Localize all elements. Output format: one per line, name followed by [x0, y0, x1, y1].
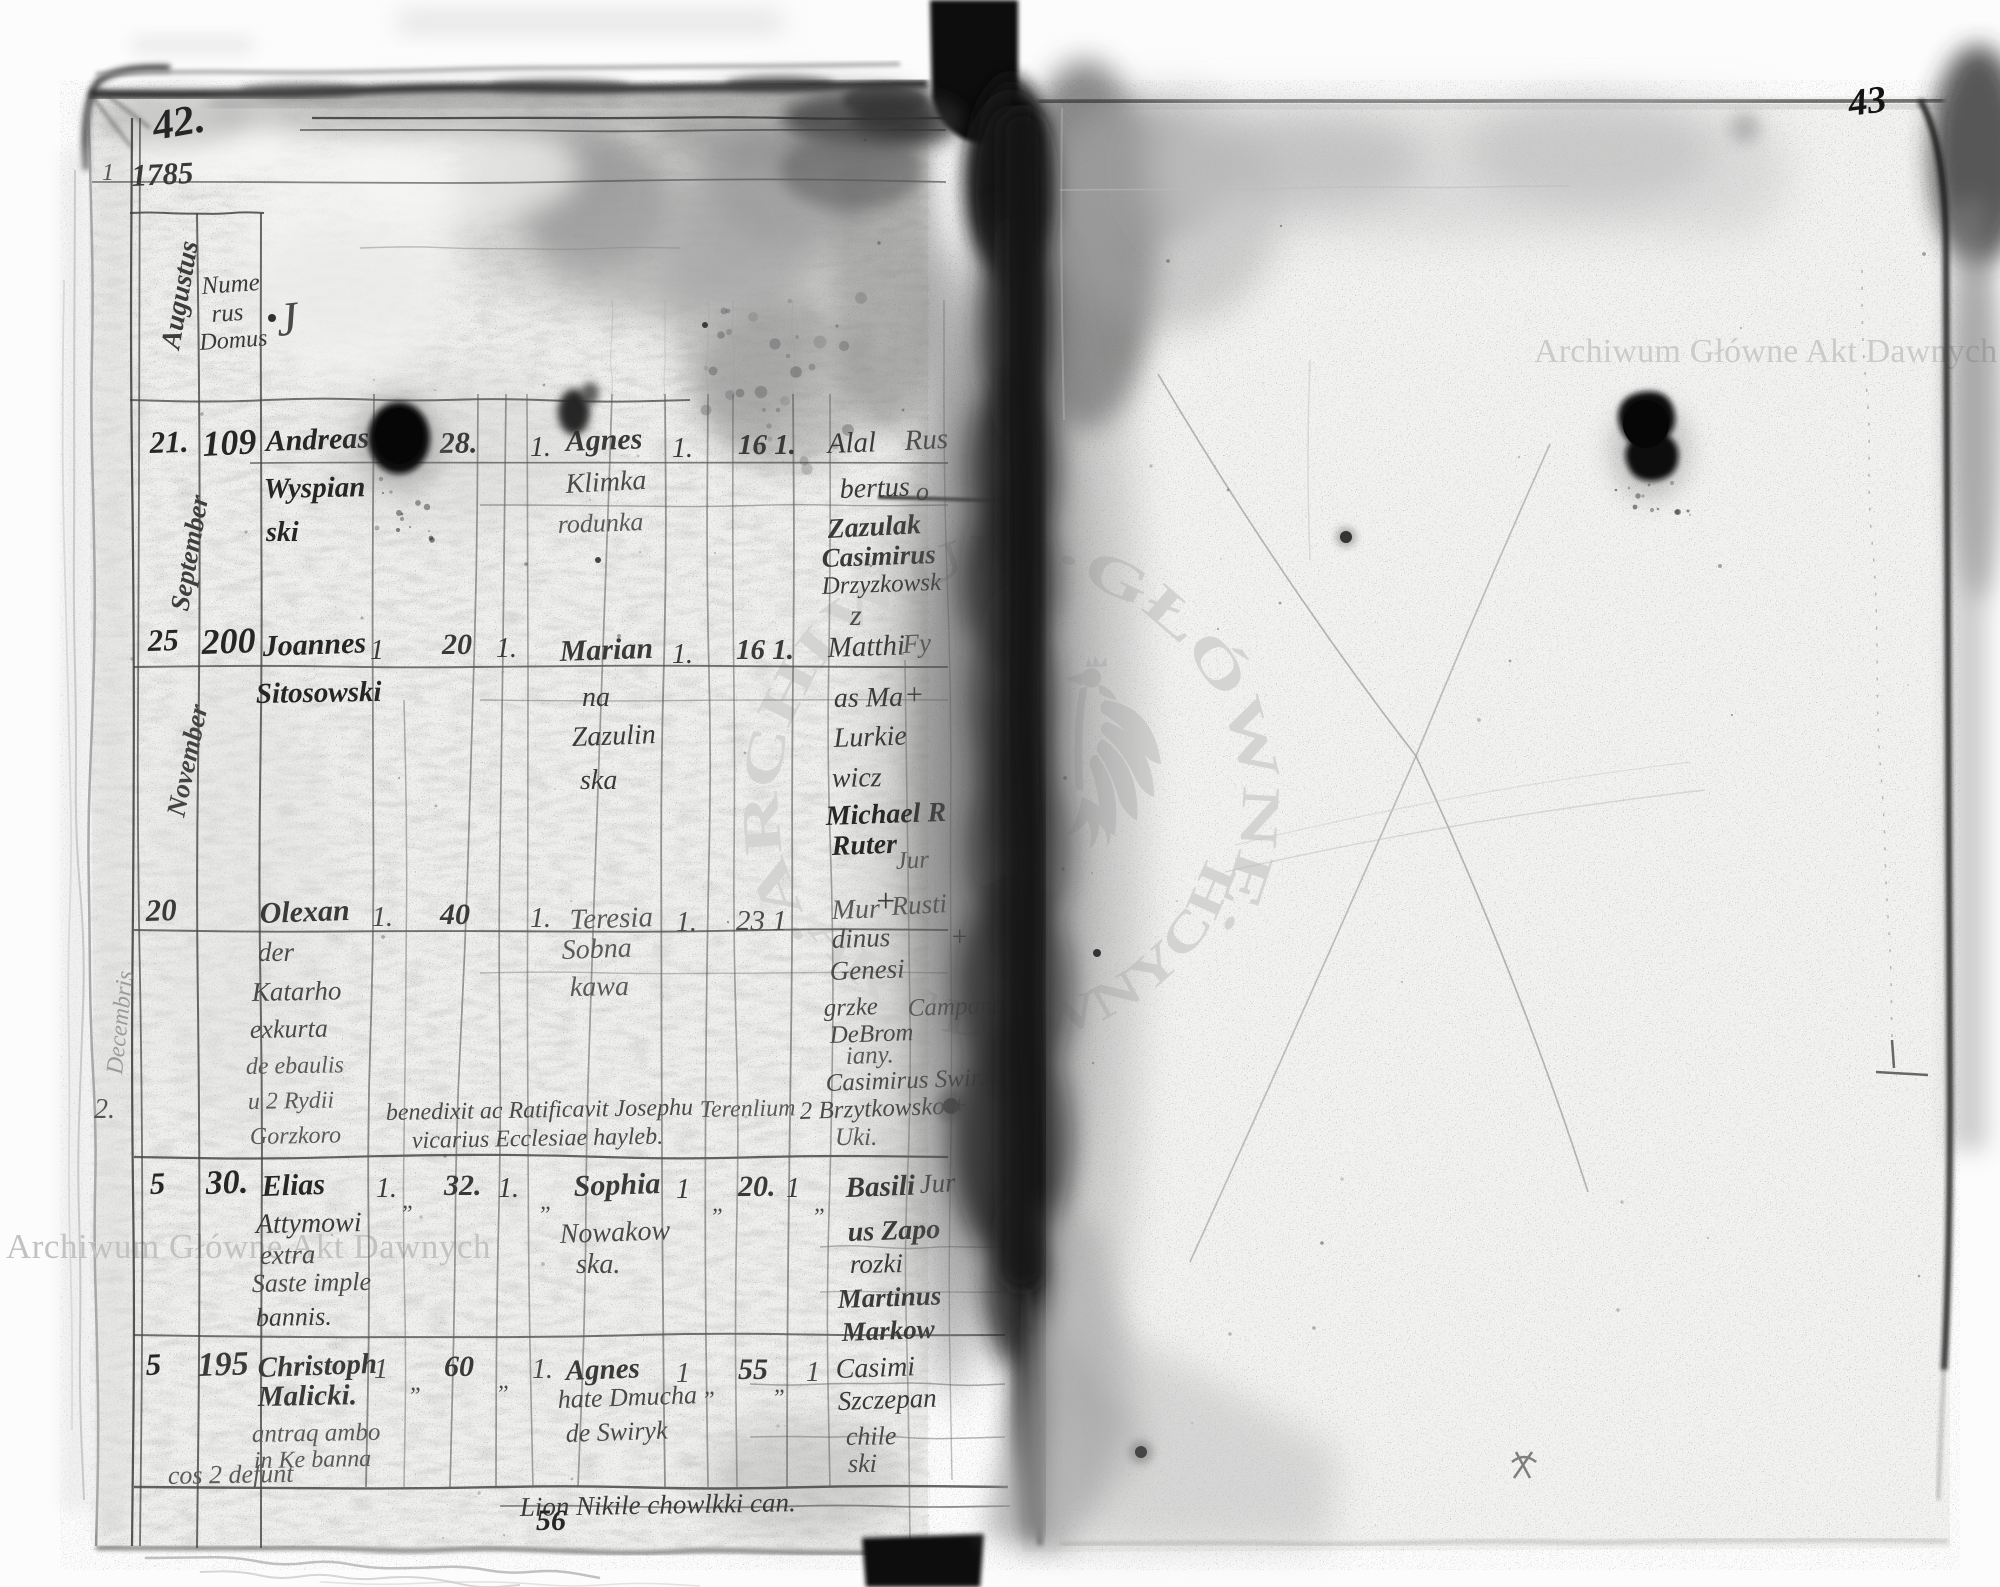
- svg-text:60: 60: [444, 1350, 474, 1383]
- svg-text:rodunka: rodunka: [557, 507, 644, 539]
- svg-text:42.: 42.: [148, 95, 209, 150]
- svg-text:Lurkie: Lurkie: [832, 720, 907, 754]
- svg-text:16 1.: 16 1.: [736, 634, 794, 666]
- svg-text:30.: 30.: [204, 1164, 249, 1202]
- svg-text:Szczepan: Szczepan: [837, 1383, 937, 1416]
- svg-text:de Swiryk: de Swiryk: [565, 1415, 668, 1448]
- svg-text:1: 1: [370, 635, 384, 666]
- svg-text:antraq ambo: antraq ambo: [252, 1419, 381, 1448]
- svg-text:1.: 1.: [496, 633, 517, 664]
- svg-text:benedixit ac Ratificavit Josep: benedixit ac Ratificavit Josephu: [386, 1095, 694, 1126]
- svg-text:195: 195: [197, 1345, 249, 1384]
- svg-text:1785: 1785: [131, 155, 195, 193]
- svg-text:21.: 21.: [148, 424, 189, 460]
- svg-text:Sophia: Sophia: [573, 1167, 661, 1203]
- svg-text:chile: chile: [846, 1421, 897, 1451]
- svg-text:1.: 1.: [498, 1173, 519, 1204]
- svg-text:kawa: kawa: [570, 971, 630, 1003]
- svg-text:as Ma: as Ma: [834, 682, 904, 714]
- svg-text:Malicki.: Malicki.: [257, 1379, 358, 1413]
- svg-text:16 1.: 16 1.: [738, 429, 796, 461]
- svg-text:1: 1: [374, 1354, 388, 1385]
- svg-text:1.: 1.: [672, 639, 693, 670]
- svg-text:„: „: [540, 1189, 553, 1215]
- svg-text:der: der: [258, 937, 294, 967]
- svg-text:bannis.: bannis.: [256, 1302, 332, 1332]
- svg-text:Genesi: Genesi: [829, 953, 905, 986]
- svg-text:dinus: dinus: [831, 922, 891, 954]
- svg-text:Matthi: Matthi: [826, 629, 905, 664]
- svg-text:25: 25: [146, 622, 179, 658]
- svg-text:Basili: Basili: [844, 1170, 915, 1204]
- svg-text:ska.: ska.: [576, 1249, 620, 1280]
- svg-text:vicarius Ecclesiae hayleb.: vicarius Ecclesiae hayleb.: [412, 1124, 664, 1154]
- svg-text:Andreas: Andreas: [263, 421, 369, 458]
- svg-text:56: 56: [536, 1504, 566, 1537]
- svg-text:Alal: Alal: [825, 426, 876, 460]
- svg-text:Katarho: Katarho: [251, 975, 342, 1007]
- svg-text:43: 43: [1844, 78, 1888, 125]
- svg-text:Markow: Markow: [840, 1314, 936, 1347]
- svg-text:Klimka: Klimka: [564, 465, 647, 500]
- svg-text:„: „: [704, 1374, 717, 1400]
- svg-text:1: 1: [786, 1173, 800, 1204]
- svg-text:Sitosowski: Sitosowski: [256, 676, 382, 710]
- svg-text:z: z: [849, 599, 862, 632]
- svg-text:1.: 1.: [530, 903, 551, 934]
- svg-text:Mur: Mur: [830, 893, 880, 926]
- svg-text:„: „: [498, 1368, 511, 1394]
- svg-text:ska: ska: [580, 765, 617, 796]
- svg-text:Gorzkoro: Gorzkoro: [250, 1122, 342, 1150]
- svg-text:55: 55: [738, 1353, 768, 1386]
- svg-text:rus: rus: [211, 299, 245, 328]
- svg-text:1.: 1.: [672, 433, 693, 464]
- svg-text:Joannes: Joannes: [261, 626, 366, 663]
- svg-text:1.: 1.: [376, 1173, 397, 1204]
- svg-text:na: na: [582, 682, 610, 713]
- svg-text:Archiwum Główne Akt Dawnych: Archiwum Główne Akt Dawnych: [6, 1227, 491, 1266]
- svg-text:Christoph: Christoph: [257, 1348, 377, 1384]
- svg-text:Wyspian: Wyspian: [264, 471, 366, 505]
- svg-text:de ebaulis: de ebaulis: [246, 1052, 344, 1080]
- svg-text:„: „: [814, 1191, 827, 1217]
- svg-text:„: „: [410, 1370, 423, 1396]
- svg-text:2.: 2.: [94, 1094, 115, 1125]
- svg-text:extra: extra: [260, 1239, 316, 1270]
- svg-text:109: 109: [201, 421, 257, 464]
- svg-text:u 2 Rydii: u 2 Rydii: [248, 1087, 335, 1115]
- svg-text:200: 200: [200, 620, 256, 662]
- svg-text:Attymowi: Attymowi: [254, 1207, 362, 1240]
- svg-text:5: 5: [145, 1346, 162, 1382]
- svg-text:1: 1: [676, 1174, 690, 1205]
- svg-text:5: 5: [149, 1165, 166, 1201]
- svg-text:1.: 1.: [676, 907, 697, 938]
- svg-text:„: „: [712, 1191, 725, 1217]
- svg-text:bertus: bertus: [839, 472, 910, 505]
- svg-text:Elias: Elias: [260, 1168, 325, 1203]
- svg-text:exkurta: exkurta: [250, 1014, 328, 1044]
- svg-text:Ruter: Ruter: [830, 829, 898, 862]
- svg-text:Uki.: Uki.: [835, 1124, 877, 1151]
- svg-text:ski: ski: [265, 517, 299, 548]
- svg-text:1: 1: [806, 1357, 820, 1388]
- svg-text:wicz: wicz: [832, 762, 882, 794]
- svg-text:Domus: Domus: [198, 325, 269, 356]
- svg-text:1.: 1.: [530, 432, 551, 463]
- svg-text:Teresia: Teresia: [569, 901, 653, 936]
- svg-text:Saste imple: Saste imple: [252, 1267, 372, 1298]
- svg-text:hate Dmucha: hate Dmucha: [557, 1380, 697, 1414]
- svg-text:Marian: Marian: [558, 632, 653, 668]
- svg-text:20: 20: [144, 892, 177, 928]
- svg-text:Olexan: Olexan: [259, 894, 350, 930]
- svg-text:Zazulin: Zazulin: [571, 719, 656, 753]
- svg-text:20.: 20.: [737, 1170, 776, 1203]
- svg-text:23 1: 23 1: [736, 905, 787, 937]
- svg-text:grzke: grzke: [823, 993, 878, 1022]
- svg-text:32.: 32.: [443, 1169, 482, 1202]
- svg-text:cos 2 defunt: cos 2 defunt: [168, 1459, 295, 1490]
- svg-text:1.: 1.: [372, 902, 393, 933]
- svg-text:Sobna: Sobna: [561, 933, 632, 966]
- svg-text:Nowakow: Nowakow: [558, 1215, 671, 1250]
- svg-text:„: „: [402, 1188, 415, 1214]
- svg-text:rozki: rozki: [850, 1248, 904, 1279]
- svg-text:40: 40: [439, 898, 470, 931]
- svg-text:Nume: Nume: [200, 269, 261, 300]
- svg-text:Casimi: Casimi: [835, 1351, 915, 1385]
- svg-text:20: 20: [441, 628, 472, 661]
- svg-text:Terenlium: Terenlium: [700, 1095, 796, 1123]
- svg-text:28.: 28.: [439, 426, 478, 460]
- svg-text:„: „: [774, 1372, 787, 1398]
- svg-text:Archiwum Główne Akt Dawnych: Archiwum Główne Akt Dawnych: [1534, 333, 1997, 370]
- svg-text:1: 1: [102, 160, 114, 186]
- svg-text:ski: ski: [848, 1449, 877, 1478]
- svg-text:iany.: iany.: [845, 1041, 894, 1070]
- svg-text:1.: 1.: [532, 1354, 553, 1385]
